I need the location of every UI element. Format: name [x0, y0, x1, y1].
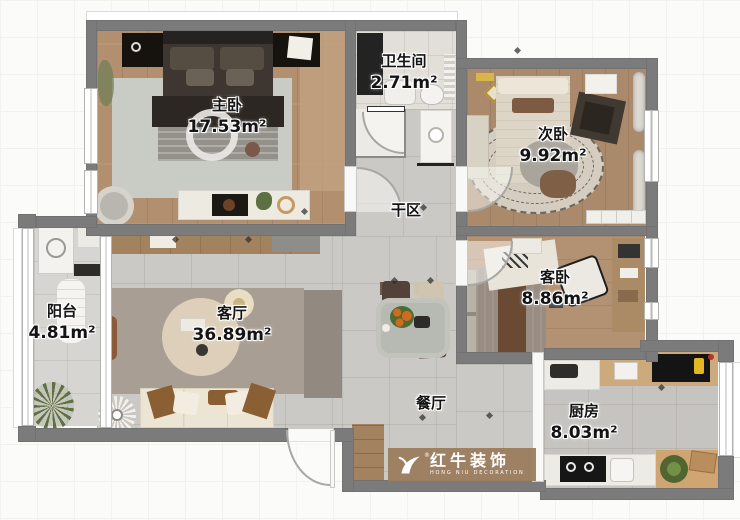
floor-plan-canvas: 主卧 17.53m² 卫生间 2.71m² 次卧 9.92m² 干区 客厅 36…: [0, 0, 740, 520]
master-dresser-mirror: [277, 196, 295, 214]
kitchen-stove-utensils: [694, 358, 704, 374]
wall-balcony-top: [36, 216, 97, 228]
wall-guest-bottom: [456, 352, 532, 364]
room-area: 8.86m²: [521, 290, 588, 310]
room-name: 干区: [391, 202, 421, 219]
room-name: 卫生间: [370, 53, 437, 70]
room-label-dry-area: 干区: [391, 202, 421, 219]
wall-kitchen-right-top: [718, 340, 734, 362]
guest-wall-cabinet: [512, 238, 542, 254]
living-kettle: [196, 344, 208, 356]
master-corner-plant: [98, 60, 114, 106]
kitchen-cooktop-burner2: [584, 462, 594, 472]
wall-living-bottom: [20, 428, 288, 442]
master-dresser-bowl: [223, 199, 235, 211]
second-deco-yellow: [476, 73, 494, 81]
wall-balcony-pillar-top: [18, 214, 36, 228]
entry-door-leaf: [330, 430, 335, 488]
guest-desk-tray: [618, 290, 638, 302]
guest-desk-monitor: [618, 244, 640, 258]
window-balcony-living-slider: [100, 236, 112, 428]
hall-vanity-edge: [417, 163, 454, 166]
kitchen-counter-top-items: [550, 364, 578, 378]
watermark-subtitle: HONG NIU DECORATION: [430, 471, 525, 476]
wall-kitchen-bottom: [540, 488, 734, 500]
window-master-left-upper: [84, 88, 98, 164]
room-area: 2.71m²: [370, 74, 437, 94]
master-nightstand-book: [287, 36, 313, 60]
master-pillow-left: [170, 47, 214, 70]
second-rug-brown-patch: [540, 170, 576, 198]
watermark-brand: 红牛装饰: [430, 453, 525, 469]
wall-top-main: [86, 20, 456, 31]
master-dresser-plant: [256, 192, 272, 210]
bathroom-radiator: [444, 54, 455, 100]
master-pillow-right: [220, 47, 264, 70]
room-area: 36.89m²: [193, 326, 272, 346]
eave-balcony-left: [13, 228, 22, 428]
room-label-living-room: 客厅 36.89m²: [193, 305, 272, 346]
kitchen-cutting-board: [689, 450, 718, 473]
room-label-second-bedroom: 次卧 9.92m²: [519, 126, 586, 167]
dining-cabinet: [352, 424, 384, 481]
kitchen-stove-dot: [708, 354, 714, 360]
second-desk-paper: [585, 74, 617, 94]
room-name: 厨房: [550, 403, 617, 420]
door-jamb-master: [344, 166, 357, 212]
kitchen-counter-top-sink: [614, 362, 638, 380]
door-jamb-guest: [455, 240, 468, 286]
eave-kitchen-right: [733, 362, 740, 458]
window-master-left-lower: [84, 170, 98, 214]
wall-balcony-pillar-bottom: [18, 426, 36, 442]
wall-entry-stub: [334, 428, 354, 442]
room-name: 主卧: [188, 97, 267, 114]
guest-desk-paper: [620, 268, 638, 278]
living-media-decor: [150, 234, 176, 248]
plan-symbol: [514, 47, 521, 54]
room-area: 4.81m²: [28, 324, 95, 344]
master-stool: [94, 186, 134, 226]
balcony-washer-door: [46, 238, 66, 258]
second-dresser: [586, 210, 646, 224]
window-guest-upper: [644, 238, 659, 268]
kitchen-plant: [660, 455, 688, 483]
room-area: 17.53m²: [188, 118, 267, 138]
wall-master-bottom: [86, 224, 356, 236]
dining-flowers: [390, 306, 414, 328]
dining-cup: [382, 324, 390, 332]
room-label-master-bedroom: 主卧 17.53m²: [188, 97, 267, 138]
wall-second-guest-divider: [456, 226, 658, 236]
room-name: 餐厅: [416, 395, 446, 412]
window-kitchen: [719, 362, 733, 456]
room-area: 8.03m²: [550, 424, 617, 444]
door-jamb-second: [455, 166, 468, 212]
master-cushion-right: [226, 69, 254, 86]
second-bed-pillows: [498, 78, 568, 94]
wall-second-top: [456, 58, 658, 69]
second-bed-accent-pillow: [512, 98, 554, 113]
room-name: 客卧: [521, 269, 588, 286]
balcony-plant: [30, 382, 74, 430]
balcony-dark-shelf: [74, 264, 100, 276]
living-chaise: [304, 290, 342, 398]
hall-vanity-sink: [428, 127, 444, 143]
room-name: 阳台: [28, 303, 95, 320]
room-label-kitchen: 厨房 8.03m²: [550, 403, 617, 444]
master-nightstand-decor: [131, 42, 141, 52]
wall-dining-bottom: [342, 480, 546, 492]
bull-icon: [397, 453, 423, 477]
registered-mark: ®: [424, 452, 430, 459]
kitchen-cooktop-burner1: [566, 462, 576, 472]
room-label-guest-bedroom: 客卧 8.86m²: [521, 269, 588, 310]
room-label-balcony: 阳台 4.81m²: [28, 303, 95, 344]
watermark-banner: ® 红牛装饰 HONG NIU DECORATION: [388, 448, 536, 481]
room-area: 9.92m²: [519, 147, 586, 167]
room-label-bathroom: 卫生间 2.71m²: [370, 53, 437, 94]
room-name: 客厅: [193, 305, 272, 322]
sofa-pillow-white-left: [173, 390, 200, 415]
window-second-bedroom: [644, 110, 659, 182]
wall-kitchen-top-left: [544, 348, 646, 360]
kitchen-sink: [610, 458, 634, 482]
master-floor-cushion: [245, 142, 260, 157]
living-floor-lamp-center: [111, 409, 123, 421]
master-cushion-left: [186, 69, 214, 86]
window-guest-lower: [644, 302, 659, 320]
room-label-dining-room: 餐厅: [416, 395, 446, 412]
room-name: 次卧: [519, 126, 586, 143]
dining-plate: [414, 316, 430, 328]
door-arc-entry: [286, 430, 330, 486]
